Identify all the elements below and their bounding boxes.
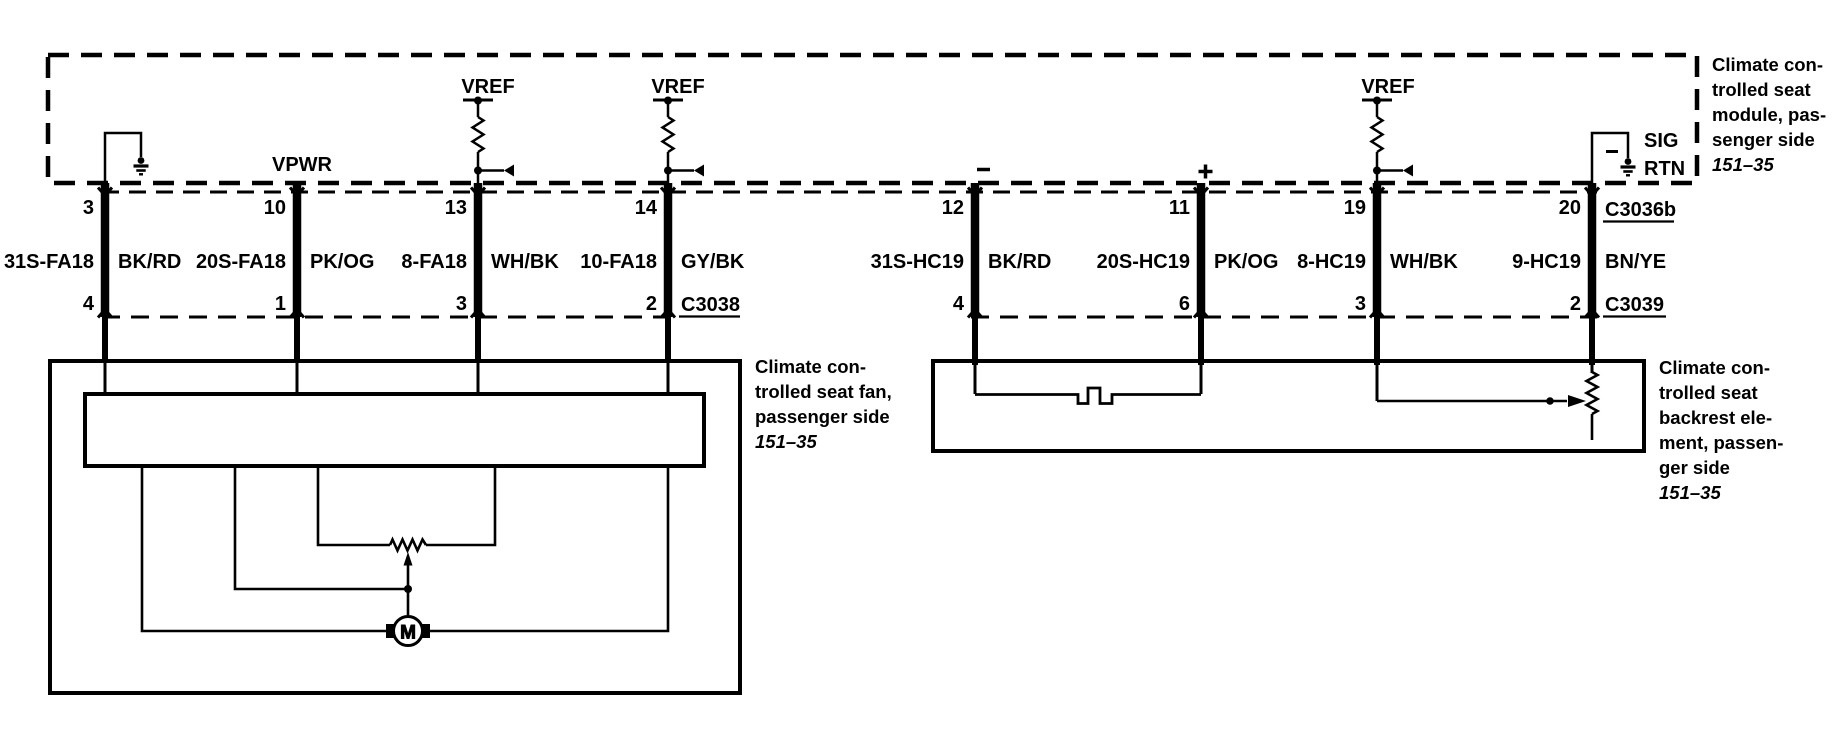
svg-text:senger side: senger side [1712,129,1815,150]
svg-text:SIG: SIG [1644,130,1678,152]
svg-text:trolled seat: trolled seat [1712,79,1811,100]
svg-text:C3039: C3039 [1605,294,1664,316]
svg-text:BK/RD: BK/RD [988,251,1051,273]
svg-text:ger side: ger side [1659,457,1730,478]
svg-text:31S-HC19: 31S-HC19 [871,251,964,273]
svg-text:31S-FA18: 31S-FA18 [4,251,94,273]
svg-text:C3036b: C3036b [1605,199,1676,221]
svg-text:6: 6 [1179,293,1190,315]
svg-text:20: 20 [1559,197,1581,219]
svg-text:C3038: C3038 [681,294,740,316]
svg-text:10: 10 [264,197,286,219]
svg-text:VREF: VREF [461,76,514,98]
svg-text:passenger side: passenger side [755,406,890,427]
svg-text:WH/BK: WH/BK [1390,251,1458,273]
svg-text:10-FA18: 10-FA18 [580,251,657,273]
svg-text:BK/RD: BK/RD [118,251,181,273]
svg-text:1: 1 [275,293,286,315]
svg-text:VREF: VREF [651,76,704,98]
svg-text:VPWR: VPWR [272,154,333,176]
svg-text:Climate con-: Climate con- [755,356,866,377]
svg-text:20S-FA18: 20S-FA18 [196,251,286,273]
svg-text:3: 3 [1355,293,1366,315]
svg-text:151–35: 151–35 [1659,482,1721,503]
svg-text:4: 4 [83,293,95,315]
svg-text:4: 4 [953,293,965,315]
svg-text:trolled seat fan,: trolled seat fan, [755,381,892,402]
svg-text:RTN: RTN [1644,158,1685,180]
svg-text:12: 12 [942,197,964,219]
svg-text:module, pas-: module, pas- [1712,104,1826,125]
svg-text:trolled seat: trolled seat [1659,382,1758,403]
svg-text:Climate con-: Climate con- [1712,54,1823,75]
svg-text:9-HC19: 9-HC19 [1512,251,1581,273]
svg-text:11: 11 [1169,197,1190,219]
svg-text:8-HC19: 8-HC19 [1297,251,1366,273]
svg-text:20S-HC19: 20S-HC19 [1097,251,1190,273]
svg-text:151–35: 151–35 [1712,154,1774,175]
svg-text:backrest ele-: backrest ele- [1659,407,1772,428]
svg-text:ment, passen-: ment, passen- [1659,432,1783,453]
svg-text:VREF: VREF [1361,76,1414,98]
svg-text:19: 19 [1344,197,1366,219]
svg-text:13: 13 [445,197,467,219]
svg-text:3: 3 [456,293,467,315]
svg-text:151–35: 151–35 [755,431,817,452]
svg-text:14: 14 [635,197,658,219]
svg-text:Climate con-: Climate con- [1659,357,1770,378]
svg-text:PK/OG: PK/OG [310,251,374,273]
svg-text:GY/BK: GY/BK [681,251,745,273]
svg-text:BN/YE: BN/YE [1605,251,1666,273]
svg-text:2: 2 [1570,293,1581,315]
svg-text:3: 3 [83,197,94,219]
svg-text:PK/OG: PK/OG [1214,251,1278,273]
svg-text:8-FA18: 8-FA18 [401,251,467,273]
svg-text:M: M [400,623,416,644]
svg-text:WH/BK: WH/BK [491,251,559,273]
svg-text:2: 2 [646,293,657,315]
